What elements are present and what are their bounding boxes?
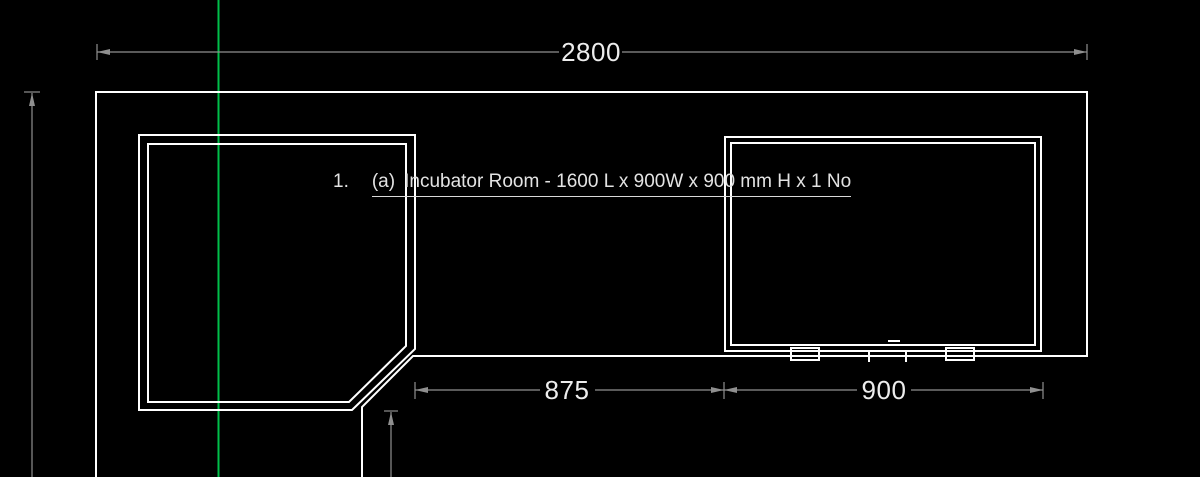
arrow-900-right (1030, 387, 1043, 393)
dimension-arrowheads (29, 49, 1087, 425)
note-text: Incubator Room - 1600 L x 900W x 900 mm … (404, 171, 851, 192)
arrow-mid-vert-up (388, 412, 394, 425)
cad-canvas[interactable] (0, 0, 1200, 477)
incubator-unit-outer[interactable] (725, 137, 1041, 351)
arrow-2800-right (1074, 49, 1087, 55)
dimension-layer (24, 44, 1087, 477)
arrow-left-vert-up (29, 93, 35, 106)
geometry-layer (96, 92, 1087, 477)
annotation-note[interactable]: 1.(a)Incubator Room - 1600 L x 900W x 90… (333, 171, 851, 197)
unit-foot-left[interactable] (791, 348, 819, 360)
dim-900-value[interactable]: 900 (862, 377, 907, 403)
note-index: (a) (372, 171, 395, 193)
dim-2800-value[interactable]: 2800 (561, 39, 621, 65)
dim-875-value[interactable]: 875 (545, 377, 590, 403)
arrow-875-right (711, 387, 724, 393)
arrow-900-left (724, 387, 737, 393)
counter-outline[interactable] (96, 92, 1087, 477)
unit-foot-right[interactable] (946, 348, 974, 360)
arrow-2800-left (97, 49, 110, 55)
arrow-875-left (415, 387, 428, 393)
cad-viewport[interactable]: 2800 875 900 1.(a)Incubator Room - 1600 … (0, 0, 1200, 477)
note-body: (a)Incubator Room - 1600 L x 900W x 900 … (372, 171, 851, 197)
note-number: 1. (333, 171, 349, 193)
